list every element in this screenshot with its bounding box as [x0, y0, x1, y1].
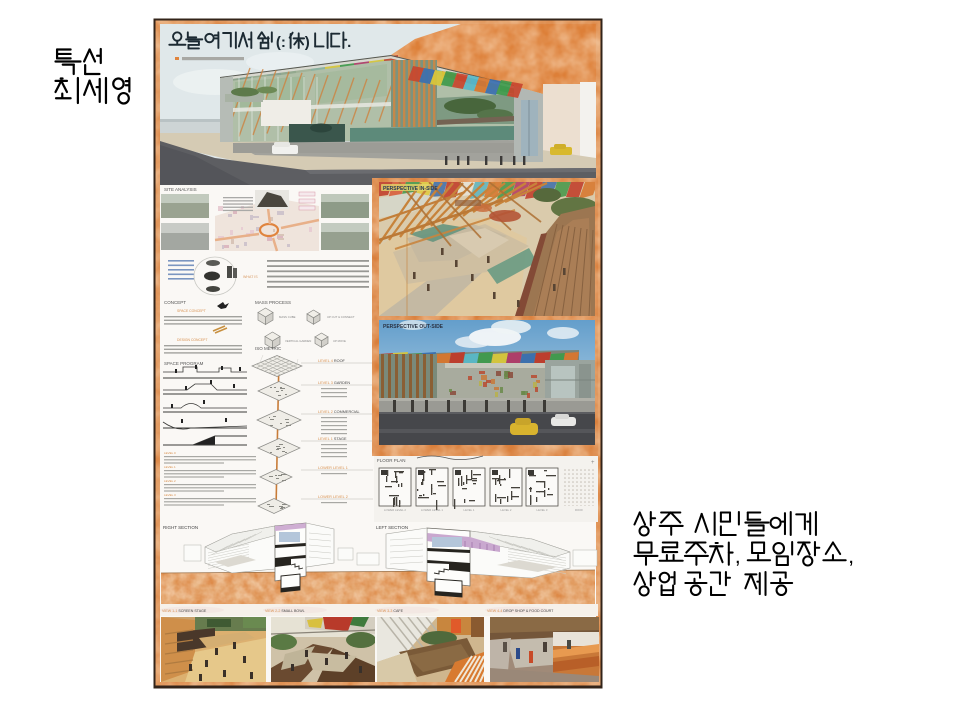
svg-text:LEVEL 2: LEVEL 2	[501, 508, 512, 512]
svg-text:LEVEL 3 GARDEN: LEVEL 3 GARDEN	[318, 381, 350, 385]
svg-text:LEVEL 2 COMMERCIAL: LEVEL 2 COMMERCIAL	[318, 410, 360, 414]
svg-text:PERSPECTIVE IN-SIDE: PERSPECTIVE IN-SIDE	[383, 186, 438, 192]
svg-text:VIEW 4-4 DROP SHOP & FOOD COUR: VIEW 4-4 DROP SHOP & FOOD COURT	[487, 609, 554, 613]
svg-text:SITE ANALYSIS: SITE ANALYSIS	[164, 187, 197, 192]
svg-text:(:: (:	[276, 34, 286, 51]
svg-text:ISO METRIC: ISO METRIC	[255, 346, 282, 351]
svg-text:LOWER LEVEL 2: LOWER LEVEL 2	[384, 508, 406, 512]
svg-text:LEVEL 3: LEVEL 3	[537, 508, 548, 512]
svg-text:DESIGN CONCEPT: DESIGN CONCEPT	[177, 338, 208, 342]
svg-text:UP CUT & CONNECT: UP CUT & CONNECT	[327, 315, 355, 319]
svg-text:LEVEL 1 STAGE: LEVEL 1 STAGE	[318, 437, 347, 441]
svg-text:+: +	[591, 460, 595, 466]
svg-text:UP MOVE: UP MOVE	[333, 339, 346, 343]
svg-text:SPACE CONCEPT: SPACE CONCEPT	[177, 309, 206, 313]
svg-text:PERSPECTIVE OUT-SIDE: PERSPECTIVE OUT-SIDE	[383, 324, 444, 330]
svg-text:LEVEL 3: LEVEL 3	[164, 493, 176, 497]
svg-text:LEVEL 2: LEVEL 2	[164, 479, 176, 483]
svg-text:LOWER LEVEL 1: LOWER LEVEL 1	[318, 466, 348, 470]
svg-text:LEVEL 1: LEVEL 1	[464, 508, 475, 512]
svg-text:CONCEPT: CONCEPT	[164, 300, 186, 305]
svg-text:.: .	[347, 34, 351, 51]
svg-text:VERTICAL GARDEN: VERTICAL GARDEN	[285, 339, 311, 343]
svg-text:LEVEL 4 ROOF: LEVEL 4 ROOF	[318, 359, 346, 363]
svg-text:,: ,	[848, 543, 854, 568]
svg-text:LEVEL 0: LEVEL 0	[164, 451, 176, 455]
svg-text:LEFT SECTION: LEFT SECTION	[376, 525, 408, 530]
svg-text:FLOOR PLAN: FLOOR PLAN	[377, 458, 406, 463]
svg-text:VIEW 3-3 CAFE: VIEW 3-3 CAFE	[377, 609, 404, 613]
svg-text:MASS PROCESS: MASS PROCESS	[255, 300, 291, 305]
svg-text:LOWER LEVEL 1: LOWER LEVEL 1	[421, 508, 443, 512]
svg-text:ROOF: ROOF	[575, 508, 583, 512]
svg-text:VIEW 1-1 SCREEN STAGE: VIEW 1-1 SCREEN STAGE	[162, 609, 207, 613]
svg-text:SPACE PROGRAM: SPACE PROGRAM	[164, 361, 204, 366]
svg-text:LOWER LEVEL 2: LOWER LEVEL 2	[318, 495, 348, 499]
svg-text:,: ,	[735, 543, 741, 568]
svg-text:RIGHT SECTION: RIGHT SECTION	[163, 525, 198, 530]
svg-text:MASS CUBE: MASS CUBE	[279, 315, 296, 319]
svg-text:VIEW 2-2 SMALL BOWL: VIEW 2-2 SMALL BOWL	[265, 609, 305, 613]
svg-text:): )	[305, 34, 310, 51]
svg-text:WHAT IS: WHAT IS	[243, 275, 258, 279]
svg-text:LEVEL 1: LEVEL 1	[164, 465, 176, 469]
